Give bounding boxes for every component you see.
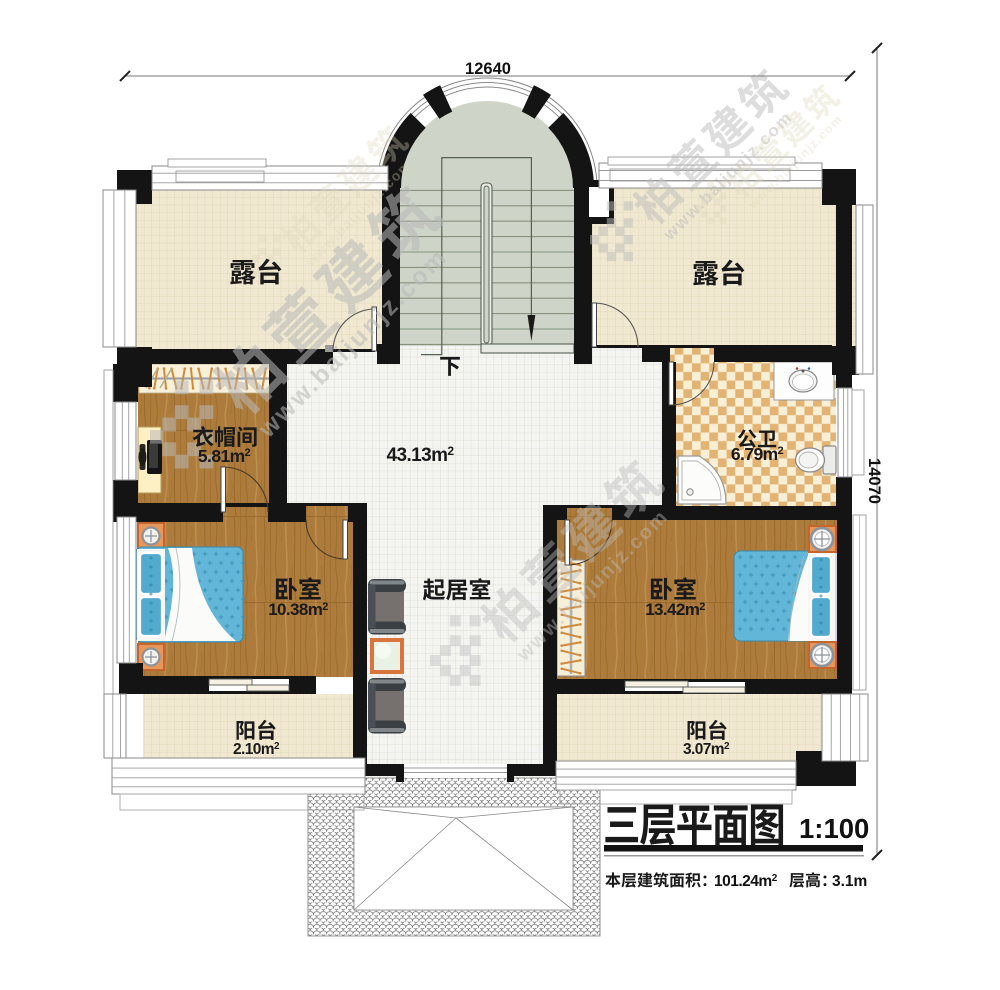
svg-text:3.07m2: 3.07m2: [683, 741, 730, 758]
svg-text:1:100: 1:100: [799, 813, 869, 844]
svg-text:12640: 12640: [465, 60, 511, 78]
svg-text:5.81m2: 5.81m2: [198, 446, 251, 466]
svg-text:14070: 14070: [865, 458, 883, 504]
svg-text:2.10m2: 2.10m2: [233, 741, 280, 758]
svg-text:3.1m: 3.1m: [832, 873, 867, 890]
svg-text:6.79m2: 6.79m2: [731, 444, 784, 464]
svg-text:101.24m2: 101.24m2: [714, 873, 778, 890]
svg-text:10.38m2: 10.38m2: [268, 600, 328, 619]
svg-text:13.42m2: 13.42m2: [645, 600, 705, 619]
svg-text:43.13m2: 43.13m2: [387, 444, 455, 466]
